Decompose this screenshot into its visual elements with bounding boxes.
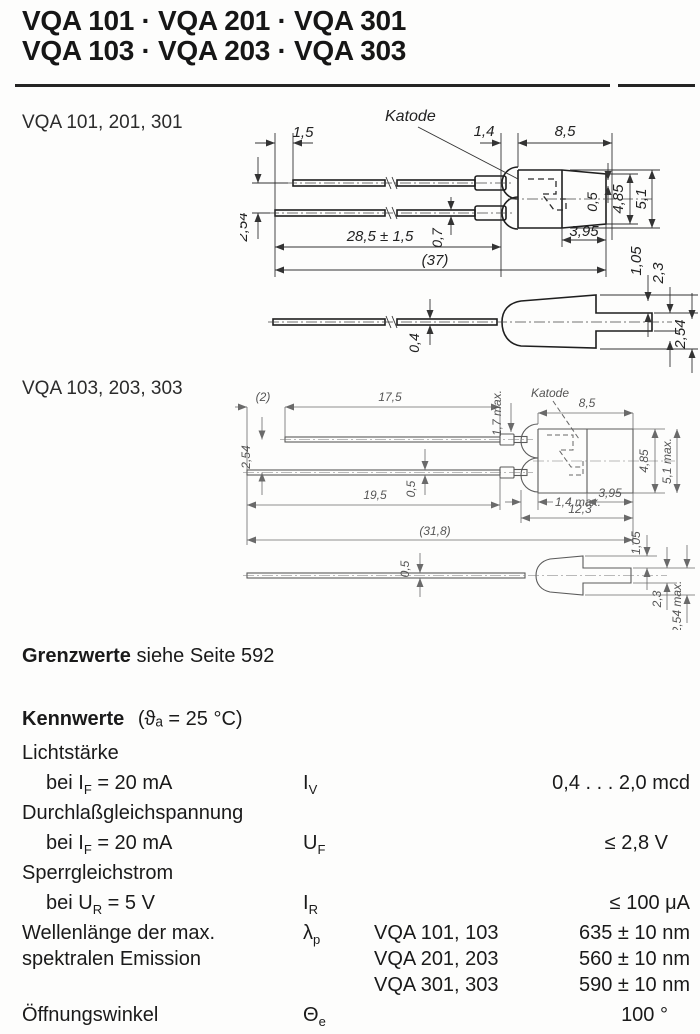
katode-label: Katode bbox=[531, 386, 569, 400]
param-condition: bei IF = 20 mA bbox=[46, 772, 172, 795]
param-symbol: Θe bbox=[303, 1004, 326, 1027]
dim-label: 2,3 bbox=[650, 262, 667, 285]
katode-label: Katode bbox=[385, 108, 436, 125]
dim-label: 28,5 ± 1,5 bbox=[346, 228, 414, 245]
dim-label: 3,95 bbox=[598, 486, 622, 500]
dim-label: 0,5 bbox=[404, 480, 418, 497]
param-group-label: Sperrgleichstrom bbox=[22, 862, 173, 885]
grenzwerte-rest: siehe Seite 592 bbox=[131, 645, 274, 667]
param-group-label: Öffnungswinkel bbox=[22, 1004, 158, 1027]
reflector-dashed-outline bbox=[547, 435, 583, 475]
table-row: bei IF = 20 mA UF ≤ 2,8 V bbox=[0, 832, 700, 862]
param-symbol: UF bbox=[303, 832, 325, 855]
dim-label: 1,7 max. bbox=[490, 390, 504, 436]
param-symbol: IR bbox=[303, 892, 318, 915]
dim-label: 0,4 bbox=[406, 333, 422, 353]
dim-label: 2,3 bbox=[650, 590, 664, 608]
dim-label: (2) bbox=[256, 390, 271, 404]
table-row: VQA 301, 303 590 ± 10 nm bbox=[0, 974, 700, 1004]
type-list: VQA 101, 103 bbox=[374, 922, 499, 945]
led-leads-top-view bbox=[275, 176, 506, 220]
param-group-label: Durchlaßgleichspannung bbox=[22, 802, 243, 825]
dim-label: 8,5 bbox=[579, 396, 596, 410]
dim-label: 0,5 bbox=[584, 192, 600, 212]
technical-drawing-vqa101: 1,5 Katode 1,4 8,5 4,85 5,1 3,95 0,5 0,7… bbox=[240, 105, 700, 375]
technical-drawing-vqa103: Katode (2) 17,5 1,7 max. 8,5 4,85 5,1 ma… bbox=[235, 385, 700, 630]
table-row: Durchlaßgleichspannung bbox=[0, 802, 700, 832]
dim-label: 0,5 bbox=[398, 560, 412, 577]
drawing2-label: VQA 103, 203, 303 bbox=[22, 378, 183, 400]
dim-label: 12,3 bbox=[568, 502, 592, 516]
datasheet-page: { "header": { "title_line1": "VQA 101 · … bbox=[0, 0, 700, 1034]
dim-label: 1,05 bbox=[629, 531, 643, 555]
dim-label: 5,1 max. bbox=[660, 438, 674, 484]
dim-label: 2,54 bbox=[240, 212, 251, 242]
dim-label: (37) bbox=[422, 252, 449, 269]
dim-label: 1,05 bbox=[628, 246, 645, 276]
led-body-side-view bbox=[521, 424, 633, 493]
param-condition: bei IF = 20 mA bbox=[46, 832, 172, 855]
dim-label: 17,5 bbox=[378, 390, 402, 404]
dim-label: 8,5 bbox=[555, 123, 577, 140]
header-rule-right bbox=[618, 84, 695, 87]
param-value: ≤ 2,8 V bbox=[605, 832, 668, 855]
param-label-line1: Wellenlänge der max. bbox=[22, 922, 215, 945]
table-row: bei IF = 20 mA IV 0,4 . . . 2,0 mcd bbox=[0, 772, 700, 802]
param-symbol: IV bbox=[303, 772, 317, 795]
dim-label: 1,5 bbox=[293, 124, 315, 141]
page-title: VQA 101 · VQA 201 · VQA 301 VQA 103 · VQ… bbox=[22, 6, 406, 66]
dim-label: 2,54 max. bbox=[670, 581, 684, 630]
dim-label: 3,95 bbox=[569, 223, 599, 240]
led-bottom-view bbox=[243, 556, 667, 595]
kennwerte-label: Kennwerte bbox=[22, 708, 124, 730]
drawing1-label: VQA 101, 201, 301 bbox=[22, 112, 183, 134]
type-list: VQA 301, 303 bbox=[374, 974, 499, 997]
kennwerte-condition: (ϑₐ = 25 °C) bbox=[138, 708, 243, 730]
led-bottom-view bbox=[268, 295, 672, 348]
dim-label: 2,54 bbox=[239, 445, 253, 470]
led-leads-top-view bbox=[247, 434, 527, 478]
param-value: ≤ 100 μA bbox=[610, 892, 690, 915]
type-list: VQA 201, 203 bbox=[374, 948, 499, 971]
title-line-1: VQA 101 · VQA 201 · VQA 301 bbox=[22, 6, 406, 36]
param-value: 560 ± 10 nm bbox=[579, 948, 690, 971]
param-group-label: Lichtstärke bbox=[22, 742, 119, 765]
reflector-dashed-outline bbox=[528, 179, 566, 210]
param-symbol: λp bbox=[303, 922, 320, 945]
dim-label: 1,4 bbox=[474, 123, 495, 140]
header-rule-left bbox=[15, 84, 610, 87]
table-row: Lichtstärke bbox=[0, 742, 700, 772]
title-line-2: VQA 103 · VQA 203 · VQA 303 bbox=[22, 36, 406, 66]
dim-label: (31,8) bbox=[419, 524, 450, 538]
param-value: 0,4 . . . 2,0 mcd bbox=[552, 772, 690, 795]
dim-label: 0,7 bbox=[429, 227, 445, 248]
dim-label: 5,1 bbox=[633, 189, 650, 210]
dim-label: 2,54 bbox=[672, 319, 689, 349]
dim-label: 4,85 bbox=[610, 184, 627, 214]
param-condition: bei UR = 5 V bbox=[46, 892, 155, 915]
table-row: Sperrgleichstrom bbox=[0, 862, 700, 892]
param-label-line2: spektralen Emission bbox=[22, 948, 201, 971]
param-value: 590 ± 10 nm bbox=[579, 974, 690, 997]
grenzwerte-line: Grenzwerte siehe Seite 592 bbox=[22, 645, 274, 668]
dim-label: 4,85 bbox=[637, 449, 651, 473]
param-value: 635 ± 10 nm bbox=[579, 922, 690, 945]
param-value: 100 ° bbox=[621, 1004, 668, 1027]
grenzwerte-label: Grenzwerte bbox=[22, 645, 131, 667]
table-row: Öffnungswinkel Θe 100 ° bbox=[0, 1004, 700, 1034]
table-row: bei UR = 5 V IR ≤ 100 μA bbox=[0, 892, 700, 922]
dim-label: 19,5 bbox=[363, 488, 387, 502]
kennwerte-heading: Kennwerte (ϑₐ = 25 °C) bbox=[22, 708, 243, 731]
